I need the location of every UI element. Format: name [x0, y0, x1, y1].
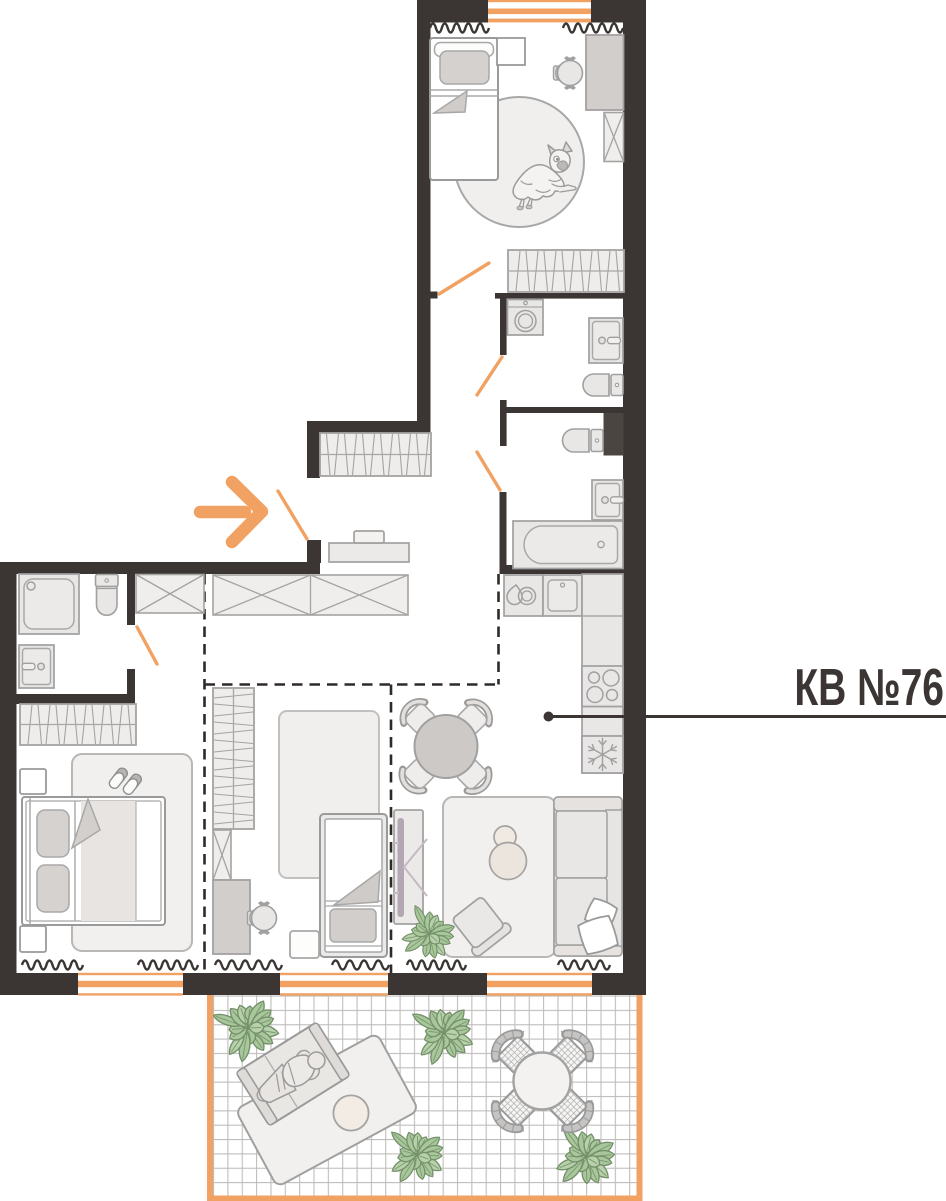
svg-text:КВ №76: КВ №76 — [794, 657, 944, 716]
